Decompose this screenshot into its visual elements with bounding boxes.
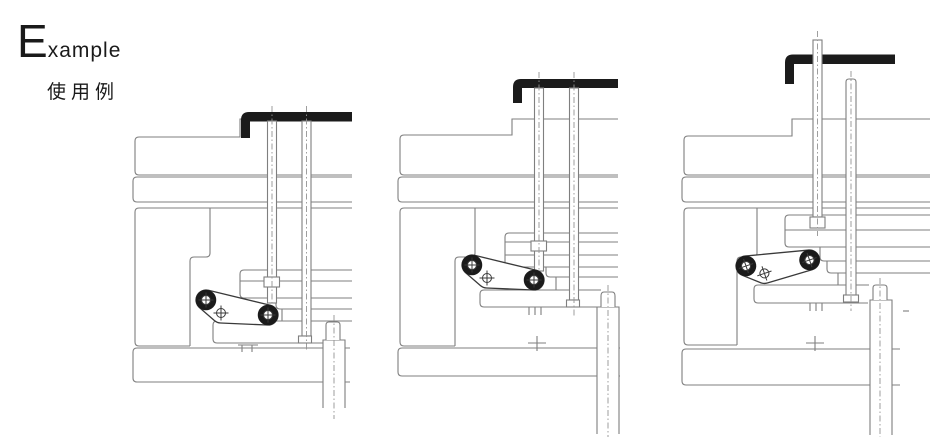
- latch-arm: [733, 233, 822, 293]
- base-screw-mark: [528, 336, 546, 351]
- main-plate: [135, 208, 352, 346]
- latch-arm: [462, 255, 544, 290]
- puller-rod-right: [844, 71, 859, 311]
- bottom-clamp-plate: [682, 349, 900, 385]
- cavity-plate-top: [400, 119, 618, 175]
- page-root: Example 使用例: [0, 0, 935, 437]
- stop-bracket: [241, 112, 352, 138]
- under-strip-screws: [810, 303, 822, 311]
- latch-arm: [196, 290, 278, 325]
- stop-bracket: [513, 79, 618, 103]
- support-pillar: [323, 315, 345, 419]
- panel-stage-3: [682, 31, 930, 437]
- bottom-clamp-plate: [133, 348, 350, 382]
- bottom-clamp-plate: [398, 348, 620, 376]
- puller-rod-right: [567, 72, 580, 316]
- stripper-strip: [480, 290, 601, 307]
- support-pillar: [597, 285, 619, 437]
- cavity-plate-second: [398, 177, 618, 202]
- main-plate: [684, 208, 930, 345]
- puller-rod-left: [264, 106, 280, 314]
- latch-pocket-edge: [190, 208, 210, 346]
- mold-sequence-figure: [0, 0, 935, 437]
- stop-bracket: [785, 55, 895, 85]
- puller-rod-left: [531, 72, 547, 280]
- panel-stage-1: [133, 106, 352, 419]
- cavity-plate-second: [682, 177, 930, 202]
- support-pillar: [870, 278, 892, 437]
- panel-stage-2: [398, 72, 620, 437]
- cavity-plate-top: [684, 119, 930, 175]
- puller-rod-right: [299, 106, 312, 352]
- cavity-plate-second: [133, 177, 352, 202]
- under-strip-screws: [529, 307, 541, 315]
